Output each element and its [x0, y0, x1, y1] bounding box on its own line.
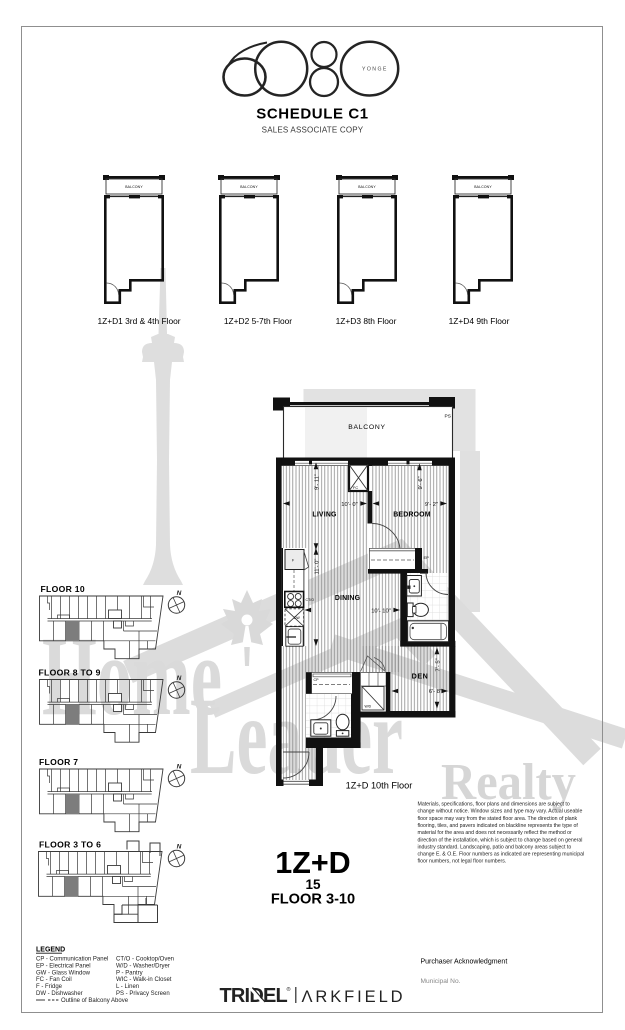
svg-text:CT/O - Cooktop/Oven: CT/O - Cooktop/Oven	[116, 957, 174, 963]
svg-text:BEDROOM: BEDROOM	[393, 512, 430, 519]
svg-text:WIC - Walk-in Closet: WIC - Walk-in Closet	[116, 977, 172, 983]
svg-text:9'- 2": 9'- 2"	[425, 502, 438, 508]
svg-text:FLOOR 8 TO 9: FLOOR 8 TO 9	[39, 668, 101, 678]
svg-text:10'- 10": 10'- 10"	[371, 608, 391, 614]
svg-text:P - Pantry: P - Pantry	[116, 970, 143, 976]
svg-text:FC: FC	[353, 486, 358, 490]
svg-text:change E. & O.E. Floor numbers: change E. & O.E. Floor numbers as indica…	[418, 852, 585, 858]
svg-text:DW: DW	[294, 616, 300, 620]
svg-text:9'- 6": 9'- 6"	[418, 476, 424, 489]
svg-text:change without notice. Window: change without notice. Window sizes and …	[418, 809, 583, 815]
svg-text:1Z+D 10th Floor: 1Z+D 10th Floor	[346, 781, 413, 791]
svg-text:PS: PS	[445, 414, 451, 420]
svg-text:CP - Communication Panel: CP - Communication Panel	[36, 957, 108, 963]
svg-text:1Z+D3 8th Floor: 1Z+D3 8th Floor	[336, 316, 397, 326]
svg-text:W/D: W/D	[365, 705, 372, 709]
svg-text:FLOOR 3 TO 6: FLOOR 3 TO 6	[39, 840, 101, 850]
svg-text:Municipal No.: Municipal No.	[421, 978, 461, 985]
svg-text:floor space may vary from the: floor space may vary from the stated flo…	[418, 816, 578, 822]
svg-text:LEGEND: LEGEND	[36, 947, 65, 954]
svg-text:FLOOR 7: FLOOR 7	[39, 757, 78, 767]
svg-text:1Z+D2 5-7th Floor: 1Z+D2 5-7th Floor	[224, 316, 292, 326]
svg-text:Outline of Balcony Above: Outline of Balcony Above	[61, 998, 129, 1004]
svg-text:SCHEDULE C1: SCHEDULE C1	[256, 106, 368, 123]
svg-text:10'- 0": 10'- 0"	[341, 502, 357, 508]
svg-text:YONGE: YONGE	[362, 67, 388, 73]
svg-text:7'- 5": 7'- 5"	[436, 658, 442, 671]
svg-text:BALCONY: BALCONY	[358, 185, 376, 189]
svg-text:FC - Fan Coil: FC - Fan Coil	[36, 977, 72, 983]
svg-text:DW - Dishwasher: DW - Dishwasher	[36, 991, 83, 997]
svg-text:FLOOR 3-10: FLOOR 3-10	[271, 892, 355, 908]
svg-text:L - Linen: L - Linen	[116, 984, 139, 990]
svg-text:BALCONY: BALCONY	[125, 185, 143, 189]
svg-text:BALCONY: BALCONY	[348, 424, 385, 431]
svg-text:BALCONY: BALCONY	[240, 185, 258, 189]
svg-text:ΛRKFIELD: ΛRKFIELD	[302, 987, 406, 1006]
svg-text:15: 15	[305, 877, 321, 892]
svg-text:direction of the installation,: direction of the installation, which is …	[418, 837, 583, 843]
svg-text:W/D - Washer/Dryer: W/D - Washer/Dryer	[116, 963, 170, 969]
svg-text:Materials, specifications, flo: Materials, specifications, floor plans a…	[418, 802, 570, 808]
svg-text:FLOOR 10: FLOOR 10	[41, 584, 85, 594]
svg-text:material for the area and does: material for the area and does not neces…	[418, 830, 573, 836]
svg-text:LIVING: LIVING	[312, 512, 336, 519]
svg-text:Purchaser Acknowledgment: Purchaser Acknowledgment	[421, 959, 508, 966]
svg-text:EP - Electrical Panel: EP - Electrical Panel	[36, 963, 91, 969]
svg-text:EP: EP	[424, 555, 430, 560]
svg-text:BALCONY: BALCONY	[474, 185, 492, 189]
svg-text:11'- 0": 11'- 0"	[315, 559, 321, 575]
svg-text:GW - Glass Window: GW - Glass Window	[36, 970, 91, 976]
svg-text:1Z+D1 3rd & 4th Floor: 1Z+D1 3rd & 4th Floor	[97, 316, 180, 326]
svg-text:PS - Privacy Screen: PS - Privacy Screen	[116, 991, 170, 997]
svg-text:DEN: DEN	[412, 672, 429, 681]
svg-text:F - Fridge: F - Fridge	[36, 984, 63, 990]
svg-text:industry standard. Landscaping: industry standard. Landscaping, patio an…	[418, 844, 572, 850]
svg-text:6'- 8": 6'- 8"	[429, 689, 442, 695]
svg-text:1Z+D: 1Z+D	[275, 846, 350, 880]
svg-text:SALES ASSOCIATE COPY: SALES ASSOCIATE COPY	[262, 126, 364, 135]
svg-text:flooring, tiles, and pavers in: flooring, tiles, and pavers indicated on…	[418, 823, 579, 829]
svg-text:®: ®	[287, 986, 291, 993]
svg-text:floor numbers, not legal floor: floor numbers, not legal floor numbers.	[418, 859, 507, 865]
svg-text:CT/O: CT/O	[306, 598, 315, 602]
svg-text:CP: CP	[314, 678, 320, 682]
svg-text:DINING: DINING	[335, 595, 360, 602]
svg-text:1Z+D4 9th Floor: 1Z+D4 9th Floor	[449, 316, 510, 326]
svg-text:9'- 11": 9'- 11"	[315, 474, 321, 490]
